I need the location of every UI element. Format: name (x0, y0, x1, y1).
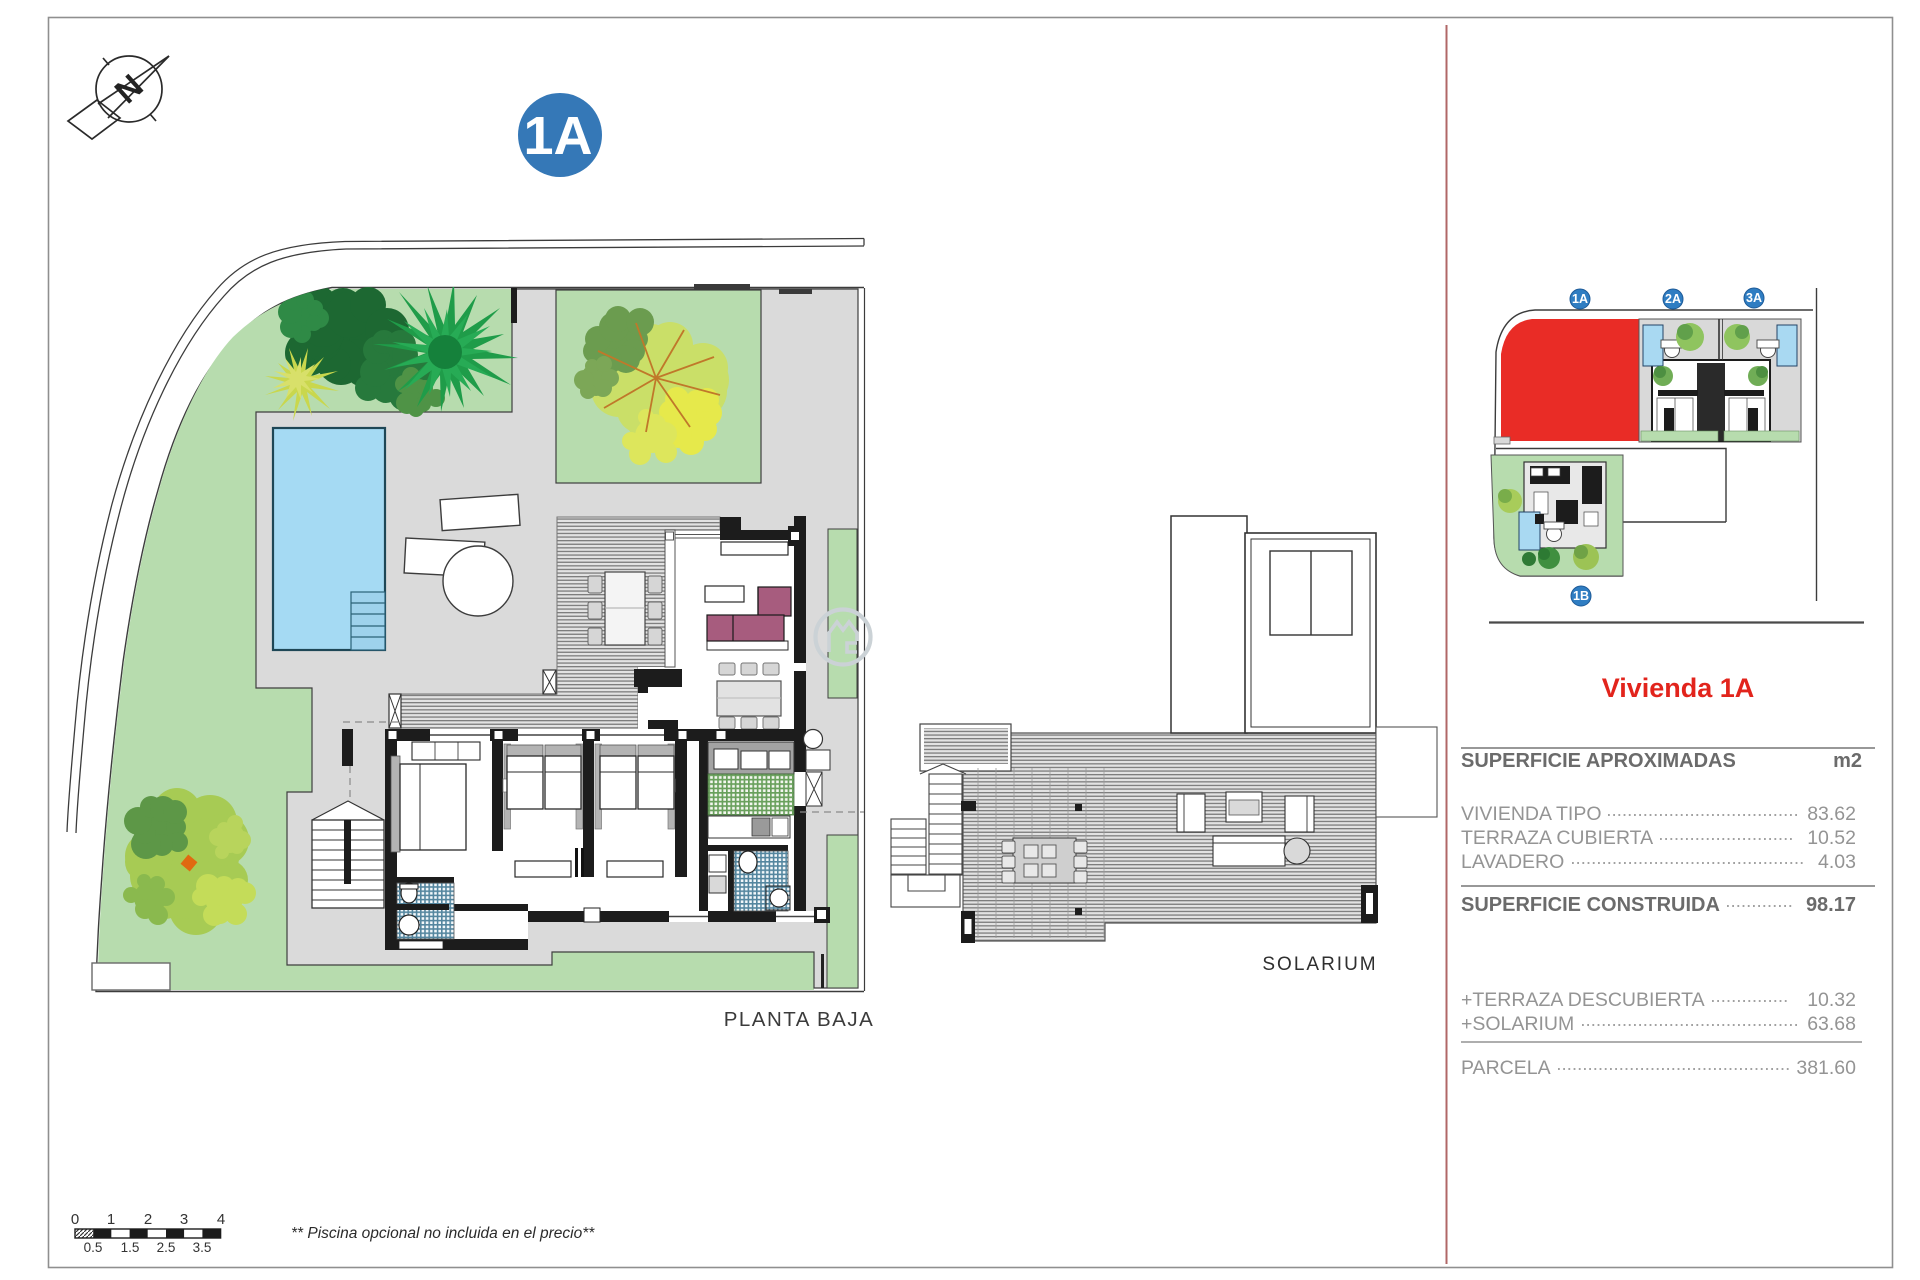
svg-text:381.60: 381.60 (1796, 1057, 1856, 1079)
svg-text:98.17: 98.17 (1806, 894, 1856, 916)
svg-text:10.32: 10.32 (1807, 989, 1856, 1011)
svg-text:LAVADERO: LAVADERO (1461, 851, 1564, 873)
svg-text:3.5: 3.5 (193, 1240, 212, 1255)
svg-text:3A: 3A (1746, 291, 1762, 305)
svg-text:1B: 1B (1573, 589, 1589, 603)
svg-text:63.68: 63.68 (1807, 1013, 1856, 1035)
svg-text:2A: 2A (1665, 292, 1681, 306)
svg-text:2: 2 (144, 1211, 152, 1228)
svg-text:+TERRAZA DESCUBIERTA: +TERRAZA DESCUBIERTA (1461, 989, 1705, 1011)
svg-text:SUPERFICIE CONSTRUIDA: SUPERFICIE CONSTRUIDA (1461, 894, 1720, 916)
svg-text:1A: 1A (1572, 292, 1588, 306)
svg-text:1A: 1A (523, 106, 592, 166)
svg-text:0: 0 (71, 1211, 79, 1228)
svg-text:SOLARIUM: SOLARIUM (1262, 954, 1377, 975)
svg-text:TERRAZA CUBIERTA: TERRAZA CUBIERTA (1461, 827, 1653, 849)
svg-text:PLANTA BAJA: PLANTA BAJA (724, 1008, 875, 1031)
svg-text:10.52: 10.52 (1807, 827, 1856, 849)
svg-text:PARCELA: PARCELA (1461, 1057, 1551, 1079)
svg-text:+SOLARIUM: +SOLARIUM (1461, 1013, 1574, 1035)
svg-text:3: 3 (180, 1211, 188, 1228)
svg-text:0.5: 0.5 (84, 1240, 103, 1255)
svg-text:2.5: 2.5 (157, 1240, 176, 1255)
svg-text:** Piscina opcional no incluid: ** Piscina opcional no incluida en el pr… (291, 1225, 595, 1242)
svg-text:4: 4 (217, 1211, 225, 1228)
svg-text:1.5: 1.5 (121, 1240, 140, 1255)
svg-text:VIVIENDA TIPO: VIVIENDA TIPO (1461, 803, 1602, 825)
svg-text:4.03: 4.03 (1818, 851, 1856, 873)
svg-text:SUPERFICIE APROXIMADAS: SUPERFICIE APROXIMADAS (1461, 750, 1736, 772)
svg-text:m2: m2 (1833, 750, 1862, 772)
svg-text:83.62: 83.62 (1807, 803, 1856, 825)
svg-text:Vivienda 1A: Vivienda 1A (1602, 673, 1755, 703)
svg-text:1: 1 (107, 1211, 115, 1228)
